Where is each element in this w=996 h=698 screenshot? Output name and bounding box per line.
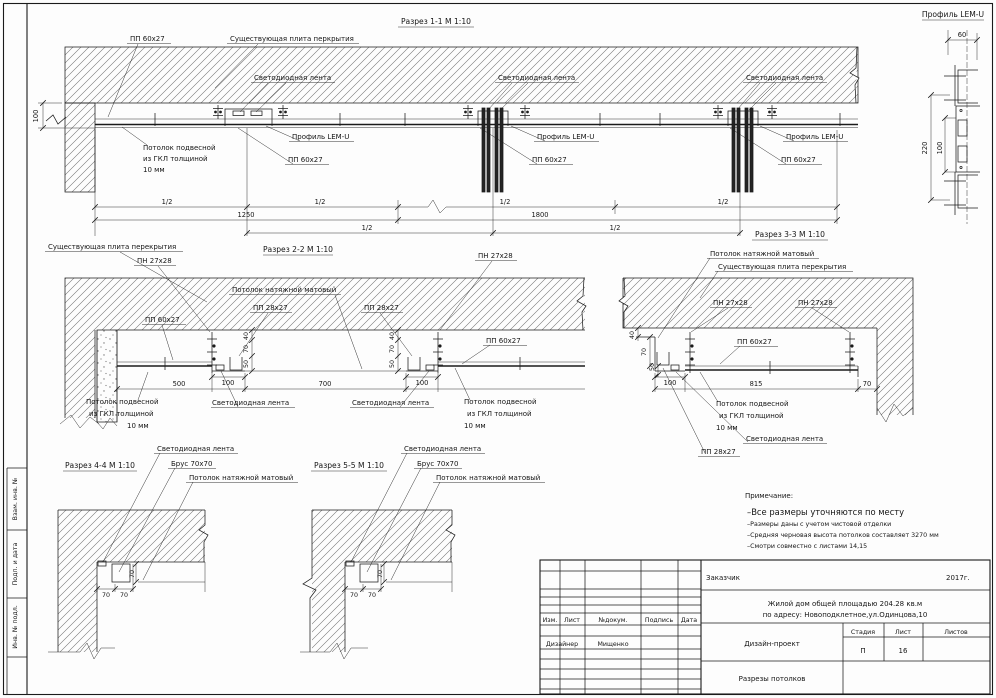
dim-70-gap: 70 bbox=[863, 380, 872, 388]
title-block: Изм. Лист №докум. Подпись Дата Дизайнер … bbox=[540, 560, 990, 694]
section-2-2: Разрез 2-2 М 1:10 Существующая плита пер… bbox=[45, 243, 586, 430]
tb-designer-label: Дизайнер bbox=[546, 640, 578, 648]
label-stretch-22: Потолок натяжной матовый bbox=[232, 286, 336, 294]
dim-70-44-h2: 70 bbox=[120, 592, 128, 599]
label-pp28-22a: ПП 28х27 bbox=[253, 304, 288, 312]
notes-line-3: –Средняя черновая высота потолков состав… bbox=[747, 532, 939, 539]
section-5-5-title: Разрез 5-5 М 1:10 bbox=[314, 461, 384, 470]
label-pn27-33a: ПН 27х28 bbox=[713, 299, 748, 307]
label-pp60-22a: ПП 60х27 bbox=[145, 316, 180, 324]
label-existing-slab: Существующая плита перкрытия bbox=[230, 35, 354, 43]
section-2-2-title: Разрез 2-2 М 1:10 bbox=[263, 245, 333, 254]
tb-col-sign: Подпись bbox=[645, 617, 674, 624]
label-pp60-1: ПП 60х27 bbox=[130, 35, 165, 43]
notes-line-4: –Смотри совместно с листами 14,15 bbox=[747, 543, 867, 550]
section-3-3-title: Разрез 3-3 М 1:10 bbox=[755, 230, 825, 239]
label-stretch-33: Потолок натяжной матовый bbox=[710, 250, 814, 258]
tb-stage-value: П bbox=[860, 647, 865, 655]
tb-sheets-label: Листов bbox=[944, 629, 968, 636]
dim-70-44-h1: 70 bbox=[102, 592, 110, 599]
label-gkl-22a-3: 10 мм bbox=[127, 422, 149, 430]
section-3-3: Разрез 3-3 М 1:10 Потолок натяжной матов… bbox=[619, 230, 913, 457]
dim-70-55-v: 70 bbox=[377, 570, 384, 578]
label-led-33: Светодиодная лента bbox=[746, 435, 823, 443]
label-pp60-3: ПП 60х27 bbox=[532, 156, 567, 164]
dim-half-1: 1/2 bbox=[162, 198, 173, 206]
dim-50-33: 50 bbox=[649, 363, 656, 371]
dim-1800: 1800 bbox=[531, 211, 548, 219]
dim-half-2: 1/2 bbox=[315, 198, 326, 206]
label-pn27-33b: ПН 27х28 bbox=[798, 299, 833, 307]
label-gkl-22b-1: Потолок подвесной bbox=[464, 398, 537, 406]
tb-object-line2: по адресу: Новоподклетное,ул.Одинцова,10 bbox=[763, 611, 928, 619]
dim-half-5: 1/2 bbox=[362, 224, 373, 232]
tb-customer-label: Заказчик bbox=[706, 574, 740, 582]
tb-designer-name: Мищенко bbox=[597, 641, 628, 648]
label-pp28-33: ПП 28х27 bbox=[701, 448, 736, 456]
dim-half-3: 1/2 bbox=[500, 198, 511, 206]
drawing-sheet: Взам. инв. № Подп. и дата Инв. № подл. Р… bbox=[0, 0, 996, 698]
label-led-strip-1: Светодиодная лента bbox=[254, 74, 331, 82]
notes-heading: Примечание: bbox=[745, 492, 793, 500]
notes-block: Примечание: –Все размеры уточняются по м… bbox=[745, 492, 939, 550]
dim-70-55-h1: 70 bbox=[350, 592, 358, 599]
tb-sheet-label: Лист bbox=[895, 629, 911, 636]
label-gkl-22b-2: из ГКЛ толщиной bbox=[467, 410, 532, 418]
led-niche-1 bbox=[225, 109, 272, 126]
label-led-strip-2: Светодиодная лента bbox=[498, 74, 575, 82]
dim-1250: 1250 bbox=[237, 211, 254, 219]
dim-100: 100 bbox=[32, 110, 40, 123]
label-pp60-33: ПП 60х27 bbox=[737, 338, 772, 346]
dim-40-22b: 40 bbox=[389, 332, 396, 340]
dim-40-33: 40 bbox=[629, 331, 636, 339]
dim-40-22a: 40 bbox=[243, 332, 250, 340]
label-gkl-line2: из ГКЛ толщиной bbox=[143, 155, 208, 163]
label-lemu-profile-2: Профиль LEM-U bbox=[537, 133, 594, 141]
side-label-podp: Подп. и дата bbox=[12, 542, 19, 585]
label-stretch-44: Потолок натяжной матовый bbox=[189, 474, 293, 482]
tb-col-list: Лист bbox=[564, 617, 580, 624]
dim-50-22a: 50 bbox=[243, 360, 250, 368]
drawing-canvas: Взам. инв. № Подп. и дата Инв. № подл. Р… bbox=[0, 0, 996, 698]
label-pn27-22b: ПН 27х28 bbox=[478, 252, 513, 260]
label-stretch-55: Потолок натяжной матовый bbox=[436, 474, 540, 482]
tb-doc-title: Разрезы потолков bbox=[739, 675, 806, 683]
dim-100-33: 100 bbox=[664, 379, 677, 387]
dim-70-22b: 70 bbox=[389, 345, 396, 353]
label-gkl-22a-1: Потолок подвесной bbox=[86, 398, 159, 406]
label-existing-slab-33: Существующая плита перекрытия bbox=[718, 263, 846, 271]
sheet-frame bbox=[4, 4, 993, 695]
label-gkl-33-1: Потолок подвесной bbox=[716, 400, 789, 408]
label-gkl-22b-3: 10 мм bbox=[464, 422, 486, 430]
label-gkl-33-3: 10 мм bbox=[716, 424, 738, 432]
dim-70-33: 70 bbox=[641, 348, 648, 356]
dim-500: 500 bbox=[173, 380, 186, 388]
label-lemu-profile-3: Профиль LEM-U bbox=[786, 133, 843, 141]
dim-60: 60 bbox=[958, 31, 967, 39]
dim-50-22b: 50 bbox=[389, 360, 396, 368]
label-gkl-line1: Потолок подвесной bbox=[143, 144, 216, 152]
label-gkl-22a-2: из ГКЛ толщиной bbox=[89, 410, 154, 418]
side-label-inv: Инв. № подл. bbox=[12, 605, 19, 648]
tb-object-line1: Жилой дом общей площадью 204.28 кв.м bbox=[768, 600, 922, 608]
dim-70-22a: 70 bbox=[243, 345, 250, 353]
dim-half-6: 1/2 bbox=[610, 224, 621, 232]
tb-stage-label: Стадия bbox=[851, 629, 875, 636]
lemu-profile-detail: Профиль LEM-U 60 220 100 bbox=[921, 10, 984, 224]
label-led-22a: Светодиодная лента bbox=[212, 399, 289, 407]
notes-line-1: –Все размеры уточняются по месту bbox=[747, 507, 904, 517]
dim-815: 815 bbox=[750, 380, 763, 388]
lemu-detail-title: Профиль LEM-U bbox=[922, 10, 984, 19]
dim-70-44-v: 70 bbox=[129, 570, 136, 578]
dim-100-22b: 100 bbox=[416, 379, 429, 387]
dim-70-55-h2: 70 bbox=[368, 592, 376, 599]
tb-col-izm: Изм. bbox=[543, 617, 558, 624]
side-label-vzam: Взам. инв. № bbox=[12, 478, 19, 521]
label-gkl-33-2: из ГКЛ толщиной bbox=[719, 412, 784, 420]
label-led-22b: Светодиодная лента bbox=[352, 399, 429, 407]
label-pp60-4: ПП 60х27 bbox=[781, 156, 816, 164]
label-existing-slab-22: Существующая плита перекрытия bbox=[48, 243, 176, 251]
label-led-44: Светодиодная лента bbox=[157, 445, 234, 453]
label-brus-55: Брус 70х70 bbox=[417, 460, 458, 468]
label-pp28-22b: ПП 28х27 bbox=[364, 304, 399, 312]
label-led-55: Светодиодная лента bbox=[404, 445, 481, 453]
section-1-1-title: Разрез 1-1 М 1:10 bbox=[401, 17, 471, 26]
notes-line-2: –Размеры даны с учетом чистовой отделки bbox=[747, 520, 891, 528]
section-4-4-title: Разрез 4-4 М 1:10 bbox=[65, 461, 135, 470]
section-5-5: Разрез 5-5 М 1:10 Светодиодная лента Бру… bbox=[300, 445, 545, 659]
dim-700: 700 bbox=[319, 380, 332, 388]
label-led-strip-3: Светодиодная лента bbox=[746, 74, 823, 82]
label-gkl-line3: 10 мм bbox=[143, 166, 165, 174]
dim-100-22a: 100 bbox=[222, 379, 235, 387]
dim-220: 220 bbox=[921, 142, 929, 155]
label-brus-44: Брус 70х70 bbox=[171, 460, 212, 468]
tb-project-type: Дизайн-проект bbox=[744, 640, 800, 648]
tb-col-date: Дата bbox=[681, 617, 697, 624]
tb-col-doc: №докум. bbox=[597, 617, 627, 624]
label-lemu-profile-1: Профиль LEM-U bbox=[292, 133, 349, 141]
side-stamp-labels: Взам. инв. № Подп. и дата Инв. № подл. bbox=[12, 478, 19, 649]
section-1-1: Разрез 1-1 М 1:10 ПП 60х27 Существующая … bbox=[32, 17, 859, 236]
label-pn27-22a: ПН 27х28 bbox=[137, 257, 172, 265]
label-pp60-2: ПП 60х27 bbox=[288, 156, 323, 164]
tb-sheet-value: 16 bbox=[899, 647, 908, 655]
tb-year: 2017г. bbox=[946, 574, 970, 582]
section-4-4: Разрез 4-4 М 1:10 Светодиодная лента Бру… bbox=[48, 445, 298, 659]
dim-half-4: 1/2 bbox=[718, 198, 729, 206]
label-pp60-22b: ПП 60х27 bbox=[486, 337, 521, 345]
dim-100-lemu: 100 bbox=[936, 142, 944, 155]
